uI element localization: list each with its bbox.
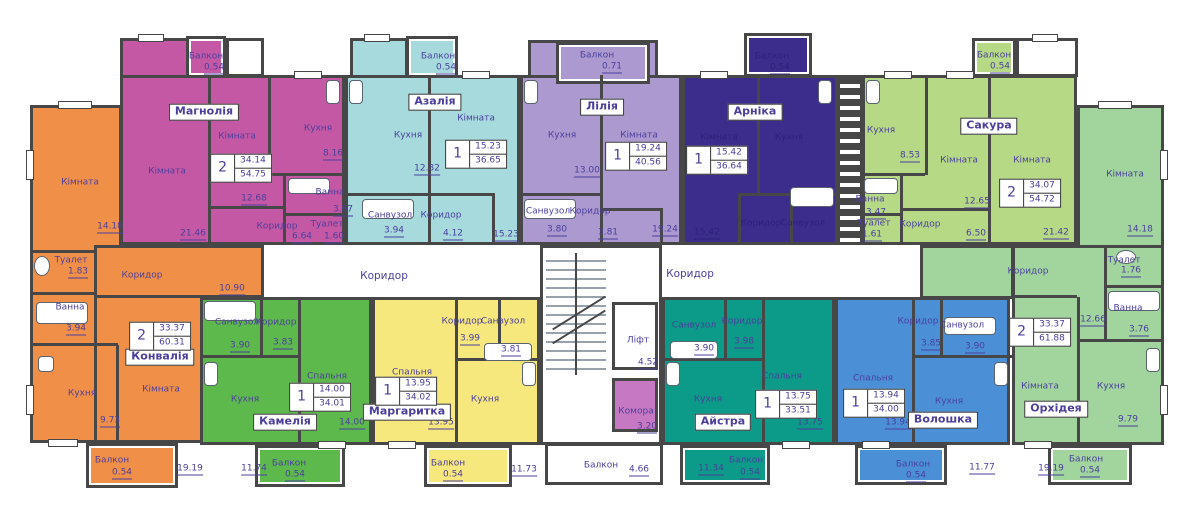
apartment-stats-sakura: 2 34.0754.72 [999,179,1061,208]
stove [994,362,1008,386]
apartment-stats-voloshka: 1 13.9434.00 [843,389,905,418]
bathtub [864,178,898,194]
room-label: Кімната [1106,171,1144,180]
room-area: 0.54 [770,64,790,75]
room-label: Коридор [898,318,939,327]
room-area: 3.98 [734,338,754,349]
room-area: 12.66 [1080,316,1106,327]
toilet [34,256,50,276]
room-label: Кімната [940,157,978,166]
room-label: Коридор [741,220,782,229]
stove [522,362,536,386]
stove [1146,348,1160,372]
room-area: 11.74 [241,465,267,476]
apartment-stats-azalia: 1 15.2336.65 [445,140,507,169]
apartment-stats-kamelia: 1 14.0034.01 [289,383,351,412]
room-label: Санвузол [940,322,984,331]
room-label: Кухня [694,396,722,405]
room-area: 6.64 [292,233,312,244]
room-label: Балкон [580,52,614,61]
room-label: Балкон [896,461,930,470]
room-label: Коридор [421,212,462,221]
room-area: 11.77 [969,464,995,475]
room-label: Балкон [1069,456,1103,465]
apartment-stats-margaritka: 1 13.9534.02 [375,377,437,406]
room-area: 13.75 [797,419,823,430]
apartment-stats-arnika: 1 15.4236.64 [686,146,748,175]
room-label: Кімната [700,134,738,143]
room-label: Кухня [231,396,259,405]
apartment-konvalia-balcony[interactable] [86,443,178,488]
room-area: 0.71 [602,63,622,74]
room-area: 0.54 [740,469,760,480]
room-area: 3.76 [1129,326,1149,337]
room-area: 8.53 [900,152,920,163]
stove [38,356,54,372]
room-label: Балкон [189,53,223,62]
room-area: 3.99 [460,335,480,346]
room-label: Ванна [856,196,885,205]
room-label: Туалет [311,221,344,230]
apartment-name-arnika: Арніка [728,104,783,121]
room-label: Кімната [218,133,256,142]
room-label: Балкон [95,457,129,466]
apartment-name-kamelia: Камелія [253,414,317,431]
room-area: 19.19 [177,465,203,476]
room-label: Кімната [142,386,180,395]
floor-plan: Коридор Коридор Конвалія Магнолія Азалія… [0,0,1194,521]
room-label: Коридор [122,272,163,281]
room-area: 4.52 [638,359,658,370]
room-label: Коридор [900,221,941,230]
room-area: 3.80 [547,226,567,237]
room-label: Балкон [729,457,763,466]
room-label: Коридор [257,223,298,232]
room-label: Спальня [762,373,802,382]
apartment-stats-lilia: 1 19.2440.56 [605,142,667,171]
room-area: 19.24 [652,226,678,237]
room-area: 13.00 [574,167,600,178]
room-label: Балкон [272,460,306,469]
room-label: Кухня [304,125,332,134]
room-area: 1.61 [862,231,882,242]
room-label: Санвузол [672,322,716,331]
room-label: Коридор [570,208,611,217]
room-area: 0.54 [204,64,224,75]
room-label: Ванна [316,189,345,198]
room-area: 0.54 [436,64,456,75]
room-area: 3.20 [637,423,657,434]
room-area: 3.90 [694,345,714,356]
room-label: Санвузол [481,318,525,327]
room-area: 19.19 [1038,465,1064,476]
room-label: Комора [618,408,653,417]
room-label: Туалет [858,220,891,229]
room-label: Кухня [394,132,422,141]
room-label: Ліфт [627,337,649,346]
room-label: Кімната [1021,383,1059,392]
room-label: Санвузол [781,220,825,229]
corridor-label-right: Коридор [666,269,714,280]
room-label: Кімната [1013,157,1051,166]
room-area: 1.60 [324,233,344,244]
apartment-stats-konvalia: 2 33.3760.31 [129,322,191,351]
room-area: 12.82 [414,165,440,176]
room-label: Кухня [1097,383,1125,392]
stove [666,362,680,386]
room-label: Коридор [256,319,297,328]
apartment-name-magnolia: Магнолія [169,104,239,121]
room-area: 11.73 [511,466,537,477]
room-area: 3.81 [598,229,618,240]
room-label: Балкон [421,53,455,62]
sakura-terrace [1016,38,1078,77]
room-label: Кухня [548,132,576,141]
room-area: 1.76 [1121,267,1141,278]
room-label: Туалет [1108,257,1141,266]
stove [349,80,363,104]
room-label: Балкон [431,460,465,469]
room-area: 14.00 [339,419,365,430]
room-area: 12.68 [241,195,267,206]
stove [866,80,880,104]
room-label: Коридор [442,318,483,327]
room-area: 9.79 [1118,416,1138,427]
room-area: 15.42 [694,229,720,240]
room-area: 14.18 [97,223,123,234]
magnolia-terrace [226,38,264,77]
room-label: Кухня [775,134,803,143]
room-label: Коридор [722,318,763,327]
room-area: 4.66 [629,466,649,477]
room-area: 0.54 [906,472,926,483]
stove [326,80,340,104]
room-label: Кухня [471,396,499,405]
bathtub [790,187,834,207]
room-label: Санвузол [368,212,412,221]
room-label: Балкон [584,462,618,471]
apartment-stats-orchid: 2 33.3761.88 [1009,318,1071,347]
room-area: 3.90 [230,342,250,353]
room-area: 1.83 [68,268,88,279]
room-area: 21.46 [180,230,206,241]
room-area: 0.54 [443,471,463,482]
room-label: Кімната [620,132,658,141]
room-label: Спальня [853,375,893,384]
apartment-name-margaritka: Маргаритка [363,404,451,421]
apartment-name-orchid: Орхідея [1024,401,1088,418]
apartment-orchid-corridor[interactable] [920,245,1014,299]
stove [524,80,538,104]
room-area: 3.90 [965,343,985,354]
room-label: Ванна [1114,305,1143,314]
stove [818,80,832,104]
apartment-stats-magnolia: 2 34.1454.75 [210,154,272,183]
room-label: Кухня [68,390,96,399]
room-label: Ванна [56,304,85,313]
room-area: 3.94 [66,325,86,336]
room-area: 4.12 [443,230,463,241]
room-label: Санвузол [526,208,570,217]
room-area: 0.54 [1080,467,1100,478]
room-area: 0.54 [112,469,132,480]
room-area: 0.54 [990,63,1010,74]
room-label: Кухня [867,127,895,136]
apartment-name-sakura: Сакура [960,118,1017,135]
room-area: 3.67 [333,206,353,217]
room-label: Кімната [61,179,99,188]
stove [204,362,218,386]
room-label: Спальня [307,373,347,382]
room-label: Кімната [148,168,186,177]
room-label: Санвузол [215,319,259,328]
apartment-magnolia-bump[interactable] [120,38,190,80]
apartment-name-voloshka: Волошка [908,412,978,429]
room-area: 9.73 [100,417,120,428]
corridor-label-left: Коридор [360,271,408,282]
apartment-name-aistra: Айстра [695,414,751,431]
room-area: 14.18 [1127,226,1153,237]
room-label: Кімната [457,115,495,124]
room-area: 21.42 [1043,229,1069,240]
room-area: 0.54 [285,471,305,482]
room-label: Кухня [935,398,963,407]
room-label: Балкон [755,53,789,62]
apartment-stats-aistra: 1 13.7533.51 [755,390,817,419]
room-area: 15.23 [493,231,519,242]
room-area: 8.16 [323,150,343,161]
room-area: 3.85 [921,340,941,351]
room-label: Балкон [977,52,1011,61]
room-area: 6.50 [966,230,986,241]
room-area: 12.65 [964,198,990,209]
room-area: 3.81 [501,346,521,357]
room-area: 11.34 [698,465,724,476]
apartment-name-lilia: Лілія [580,99,624,116]
apartment-name-konvalia: Конвалія [125,349,194,366]
apartment-azalia-bump[interactable] [350,38,408,80]
room-label: Туалет [55,257,88,266]
room-area: 3.83 [273,339,293,350]
apartment-name-azalia: Азалія [408,94,461,111]
room-area: 3.94 [384,227,404,238]
room-area: 10.90 [219,285,245,296]
room-label: Коридор [1008,268,1049,277]
